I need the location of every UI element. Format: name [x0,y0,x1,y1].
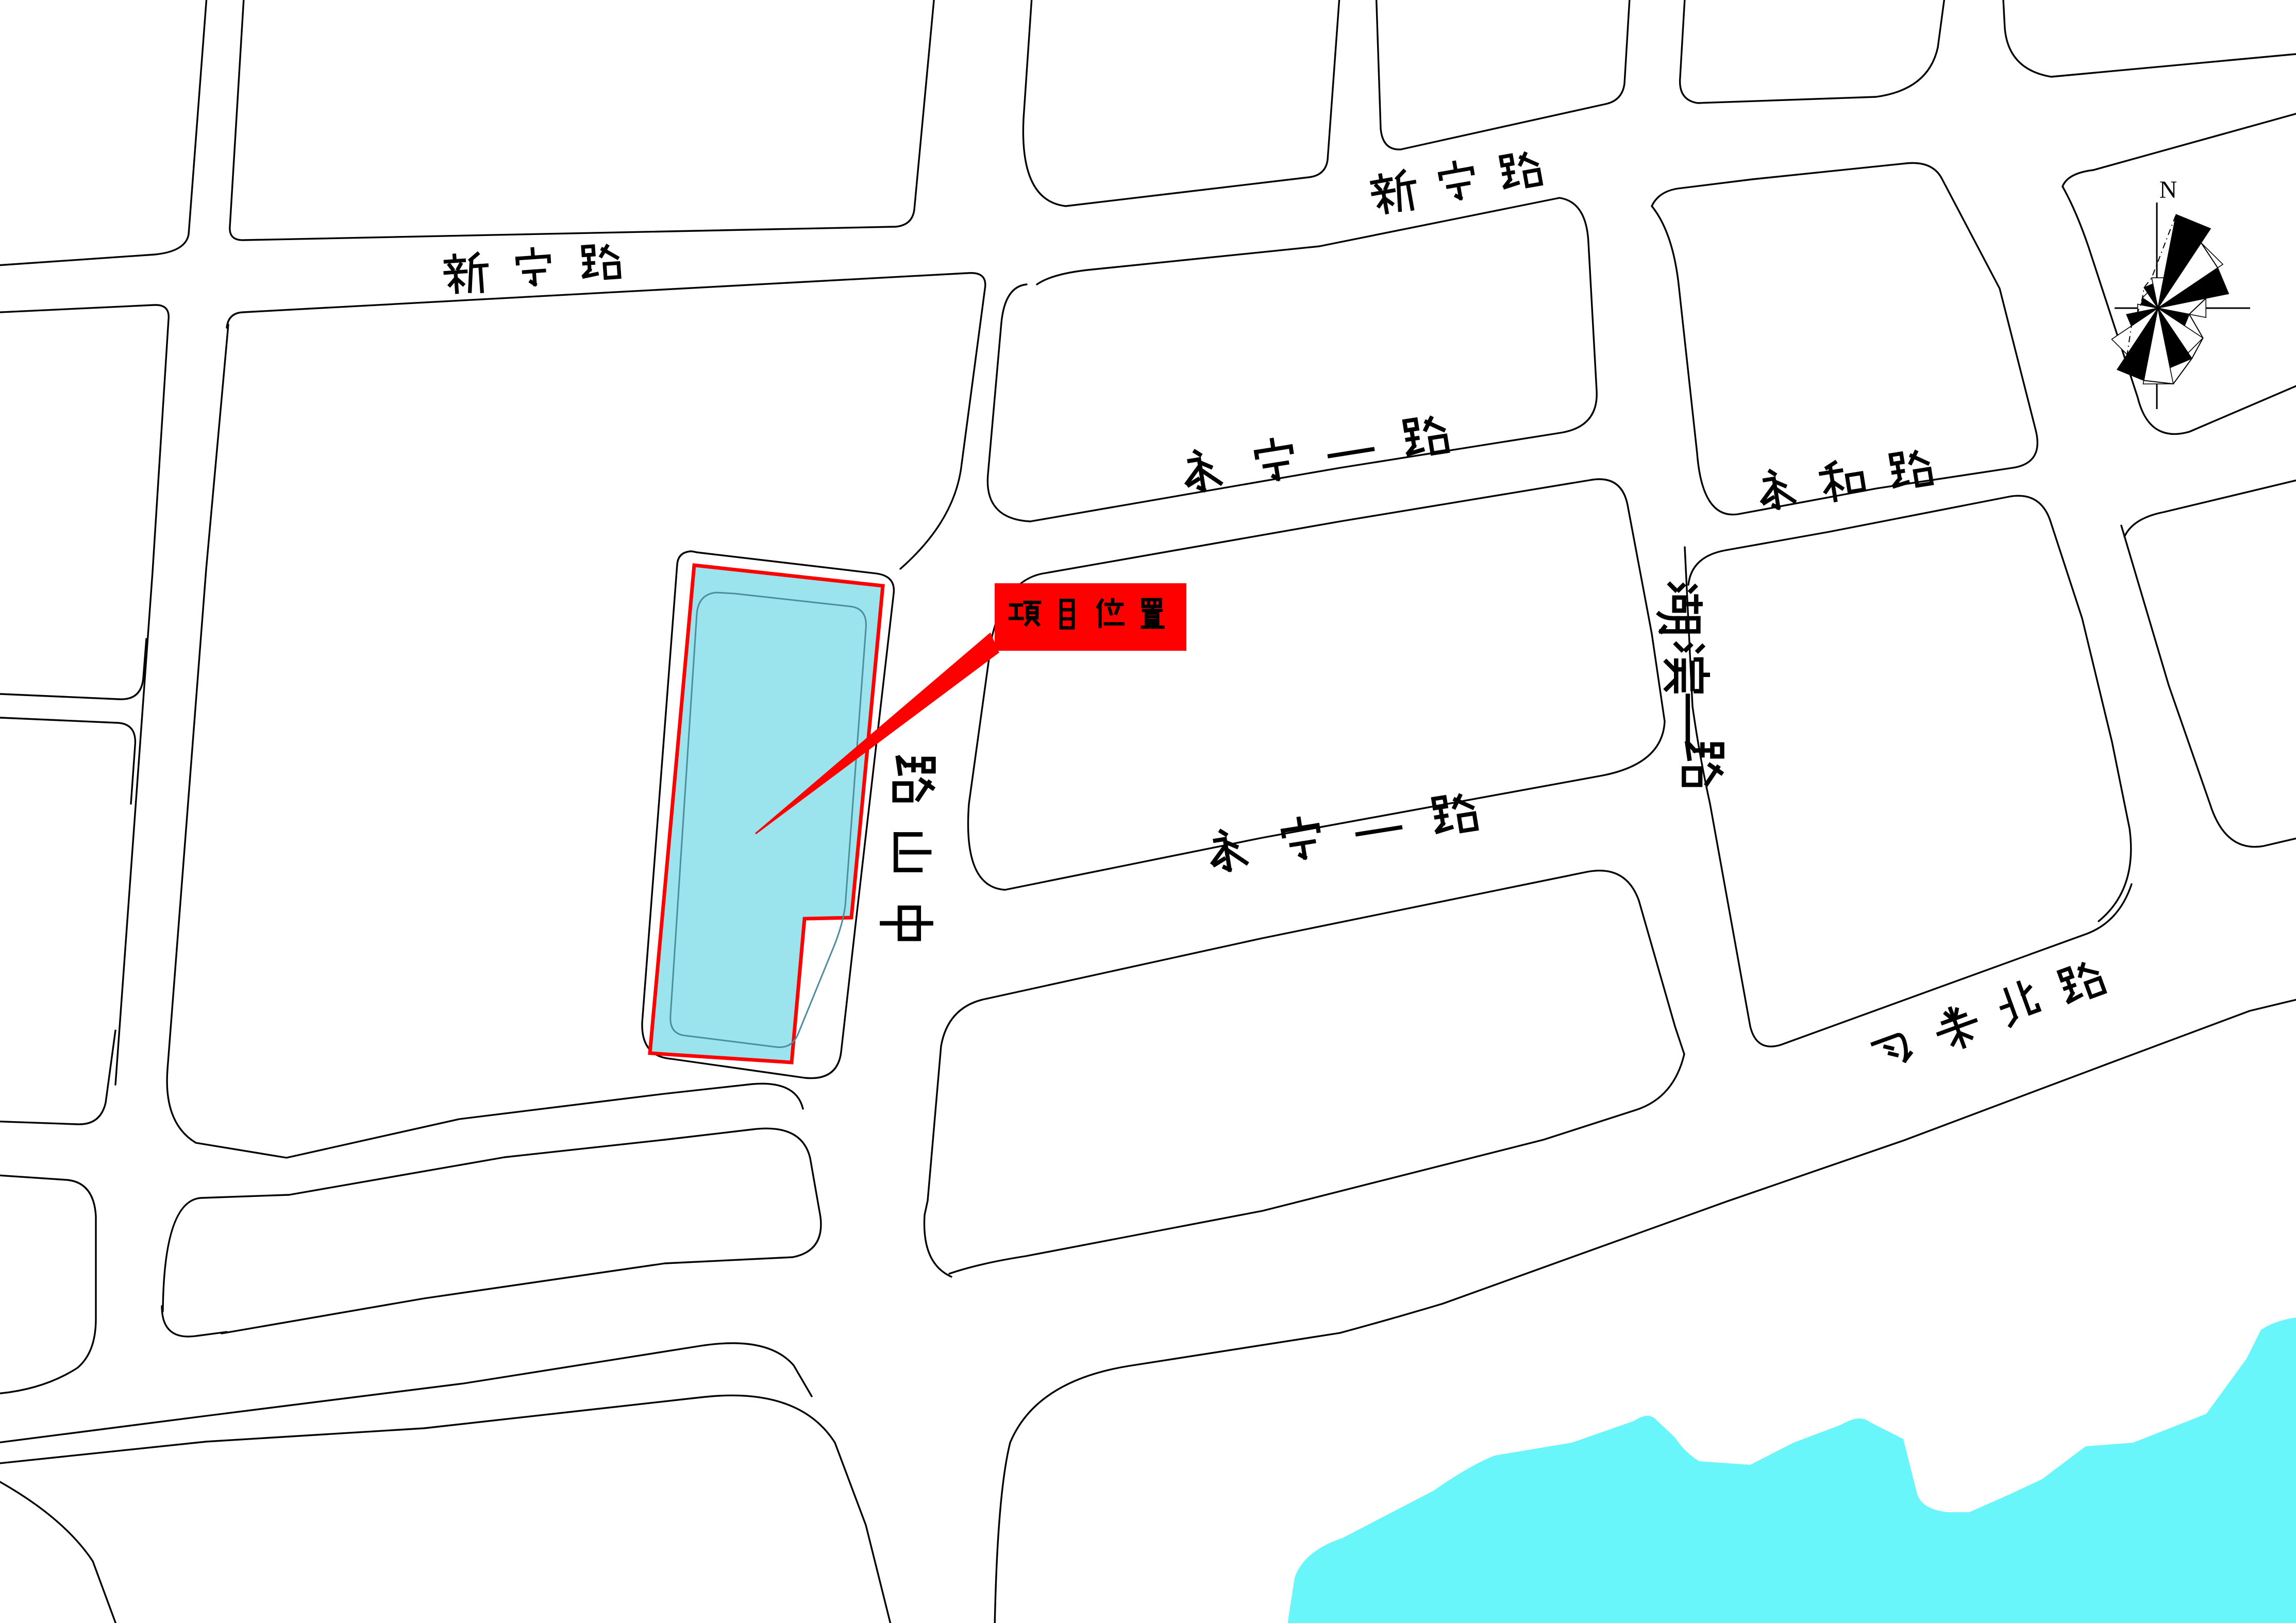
svg-text:N: N [2159,176,2177,204]
